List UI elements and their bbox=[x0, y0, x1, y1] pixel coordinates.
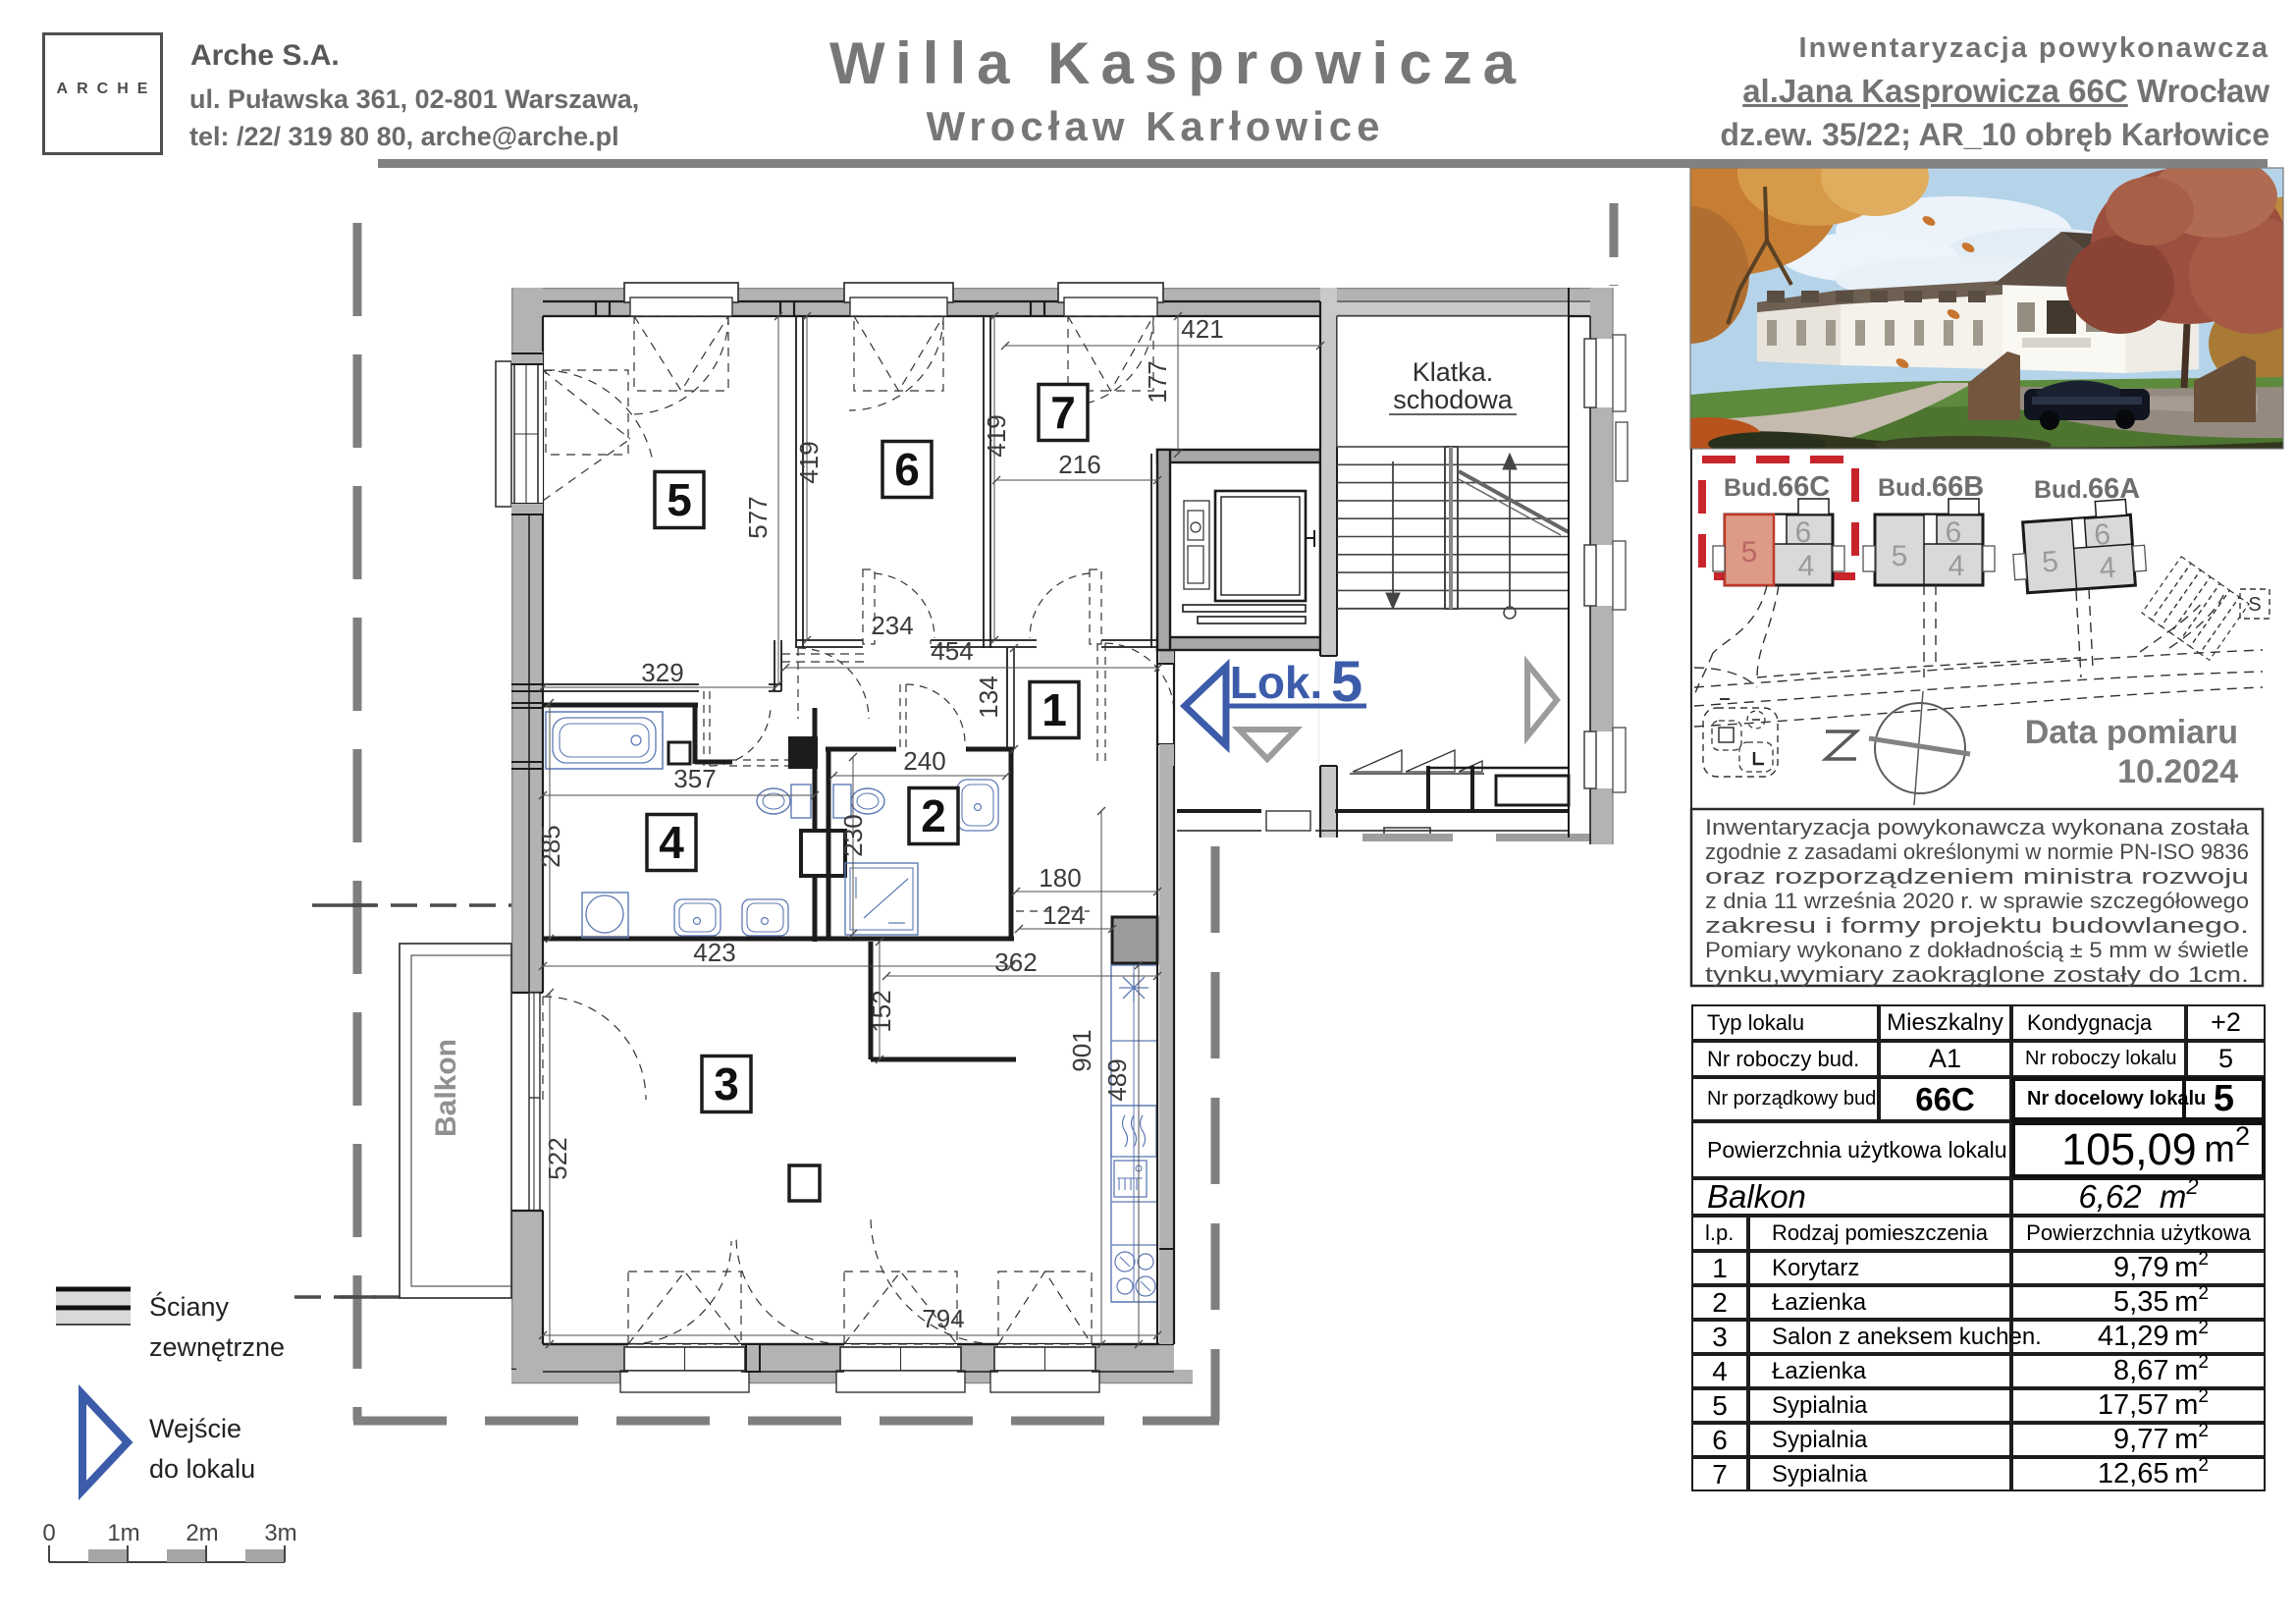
svg-text:4: 4 bbox=[1949, 550, 1965, 582]
svg-text:362: 362 bbox=[994, 947, 1037, 977]
svg-text:zgodnie z zasadami określonymi: zgodnie z zasadami określonymi w normie … bbox=[1705, 839, 2249, 864]
svg-text:230: 230 bbox=[838, 814, 868, 856]
svg-text:schodowa: schodowa bbox=[1393, 385, 1514, 414]
svg-text:124: 124 bbox=[1042, 900, 1085, 930]
svg-text:454: 454 bbox=[931, 636, 973, 666]
svg-text:oraz rozporządzeniem ministra: oraz rozporządzeniem ministra rozwoju bbox=[1705, 864, 2249, 889]
svg-text:10.2024: 10.2024 bbox=[2117, 753, 2238, 790]
svg-text:Bud.: Bud. bbox=[2034, 476, 2089, 504]
svg-text:Data pomiaru: Data pomiaru bbox=[2025, 714, 2238, 751]
svg-text:66B: 66B bbox=[1932, 471, 1984, 503]
svg-text:zewnętrzne: zewnętrzne bbox=[149, 1332, 285, 1362]
svg-text:5: 5 bbox=[2041, 546, 2059, 579]
svg-text:do lokalu: do lokalu bbox=[149, 1454, 255, 1484]
svg-text:2: 2 bbox=[921, 790, 946, 841]
svg-text:329: 329 bbox=[641, 658, 683, 687]
svg-text:Wejście: Wejście bbox=[149, 1414, 241, 1443]
svg-text:4: 4 bbox=[1798, 550, 1815, 582]
svg-text:6: 6 bbox=[894, 444, 920, 495]
svg-text:180: 180 bbox=[1039, 863, 1081, 893]
svg-text:357: 357 bbox=[673, 764, 716, 793]
svg-text:Ściany: Ściany bbox=[149, 1290, 230, 1322]
svg-text:177: 177 bbox=[1143, 360, 1172, 403]
svg-text:7: 7 bbox=[1050, 387, 1076, 438]
svg-text:zakresu i formy projektu budow: zakresu i formy projektu budowlanego. bbox=[1705, 913, 2249, 938]
svg-text:901: 901 bbox=[1067, 1029, 1096, 1071]
svg-text:Balkon: Balkon bbox=[430, 1039, 462, 1137]
svg-text:489: 489 bbox=[1102, 1058, 1132, 1101]
svg-text:2m: 2m bbox=[186, 1520, 218, 1546]
svg-text:419: 419 bbox=[982, 414, 1011, 457]
svg-text:794: 794 bbox=[922, 1304, 964, 1333]
svg-text:Bud.: Bud. bbox=[1878, 474, 1933, 502]
svg-text:1: 1 bbox=[1041, 684, 1067, 735]
svg-text:66C: 66C bbox=[1778, 471, 1830, 503]
svg-text:Inwentaryzacja powykonawcza wy: Inwentaryzacja powykonawcza wykonana zos… bbox=[1705, 815, 2250, 839]
svg-text:Bud.: Bud. bbox=[1724, 474, 1779, 502]
svg-text:Klatka.: Klatka. bbox=[1413, 357, 1494, 387]
svg-text:Pomiary wykonano z dokładności: Pomiary wykonano z dokładnością ± 5 mm w… bbox=[1705, 938, 2249, 962]
svg-text:419: 419 bbox=[794, 441, 824, 483]
svg-text:S: S bbox=[2248, 594, 2261, 616]
svg-text:421: 421 bbox=[1181, 314, 1223, 344]
svg-text:577: 577 bbox=[743, 496, 773, 538]
svg-text:423: 423 bbox=[693, 938, 735, 967]
svg-text:4: 4 bbox=[659, 817, 684, 868]
svg-text:216: 216 bbox=[1058, 450, 1100, 479]
svg-text:5: 5 bbox=[667, 474, 692, 525]
svg-text:134: 134 bbox=[974, 676, 1003, 718]
svg-text:285: 285 bbox=[536, 825, 565, 867]
svg-text:240: 240 bbox=[903, 746, 945, 776]
svg-text:5: 5 bbox=[1892, 540, 1908, 572]
svg-text:z dnia 11 września 2020 r. w s: z dnia 11 września 2020 r. w sprawie szc… bbox=[1705, 889, 2249, 913]
svg-text:152: 152 bbox=[867, 990, 896, 1032]
svg-text:3: 3 bbox=[714, 1058, 739, 1110]
svg-text:tynku,wymiary zaokrąglone zost: tynku,wymiary zaokrąglone zostały do 1cm… bbox=[1705, 962, 2249, 987]
svg-text:3m: 3m bbox=[264, 1520, 296, 1546]
svg-text:0: 0 bbox=[42, 1520, 55, 1546]
svg-text:1m: 1m bbox=[107, 1520, 139, 1546]
svg-text:522: 522 bbox=[543, 1137, 572, 1179]
svg-text:Lok.: Lok. bbox=[1230, 657, 1323, 708]
svg-text:5: 5 bbox=[1741, 536, 1758, 568]
svg-text:234: 234 bbox=[871, 611, 913, 640]
svg-text:4: 4 bbox=[2099, 551, 2117, 584]
